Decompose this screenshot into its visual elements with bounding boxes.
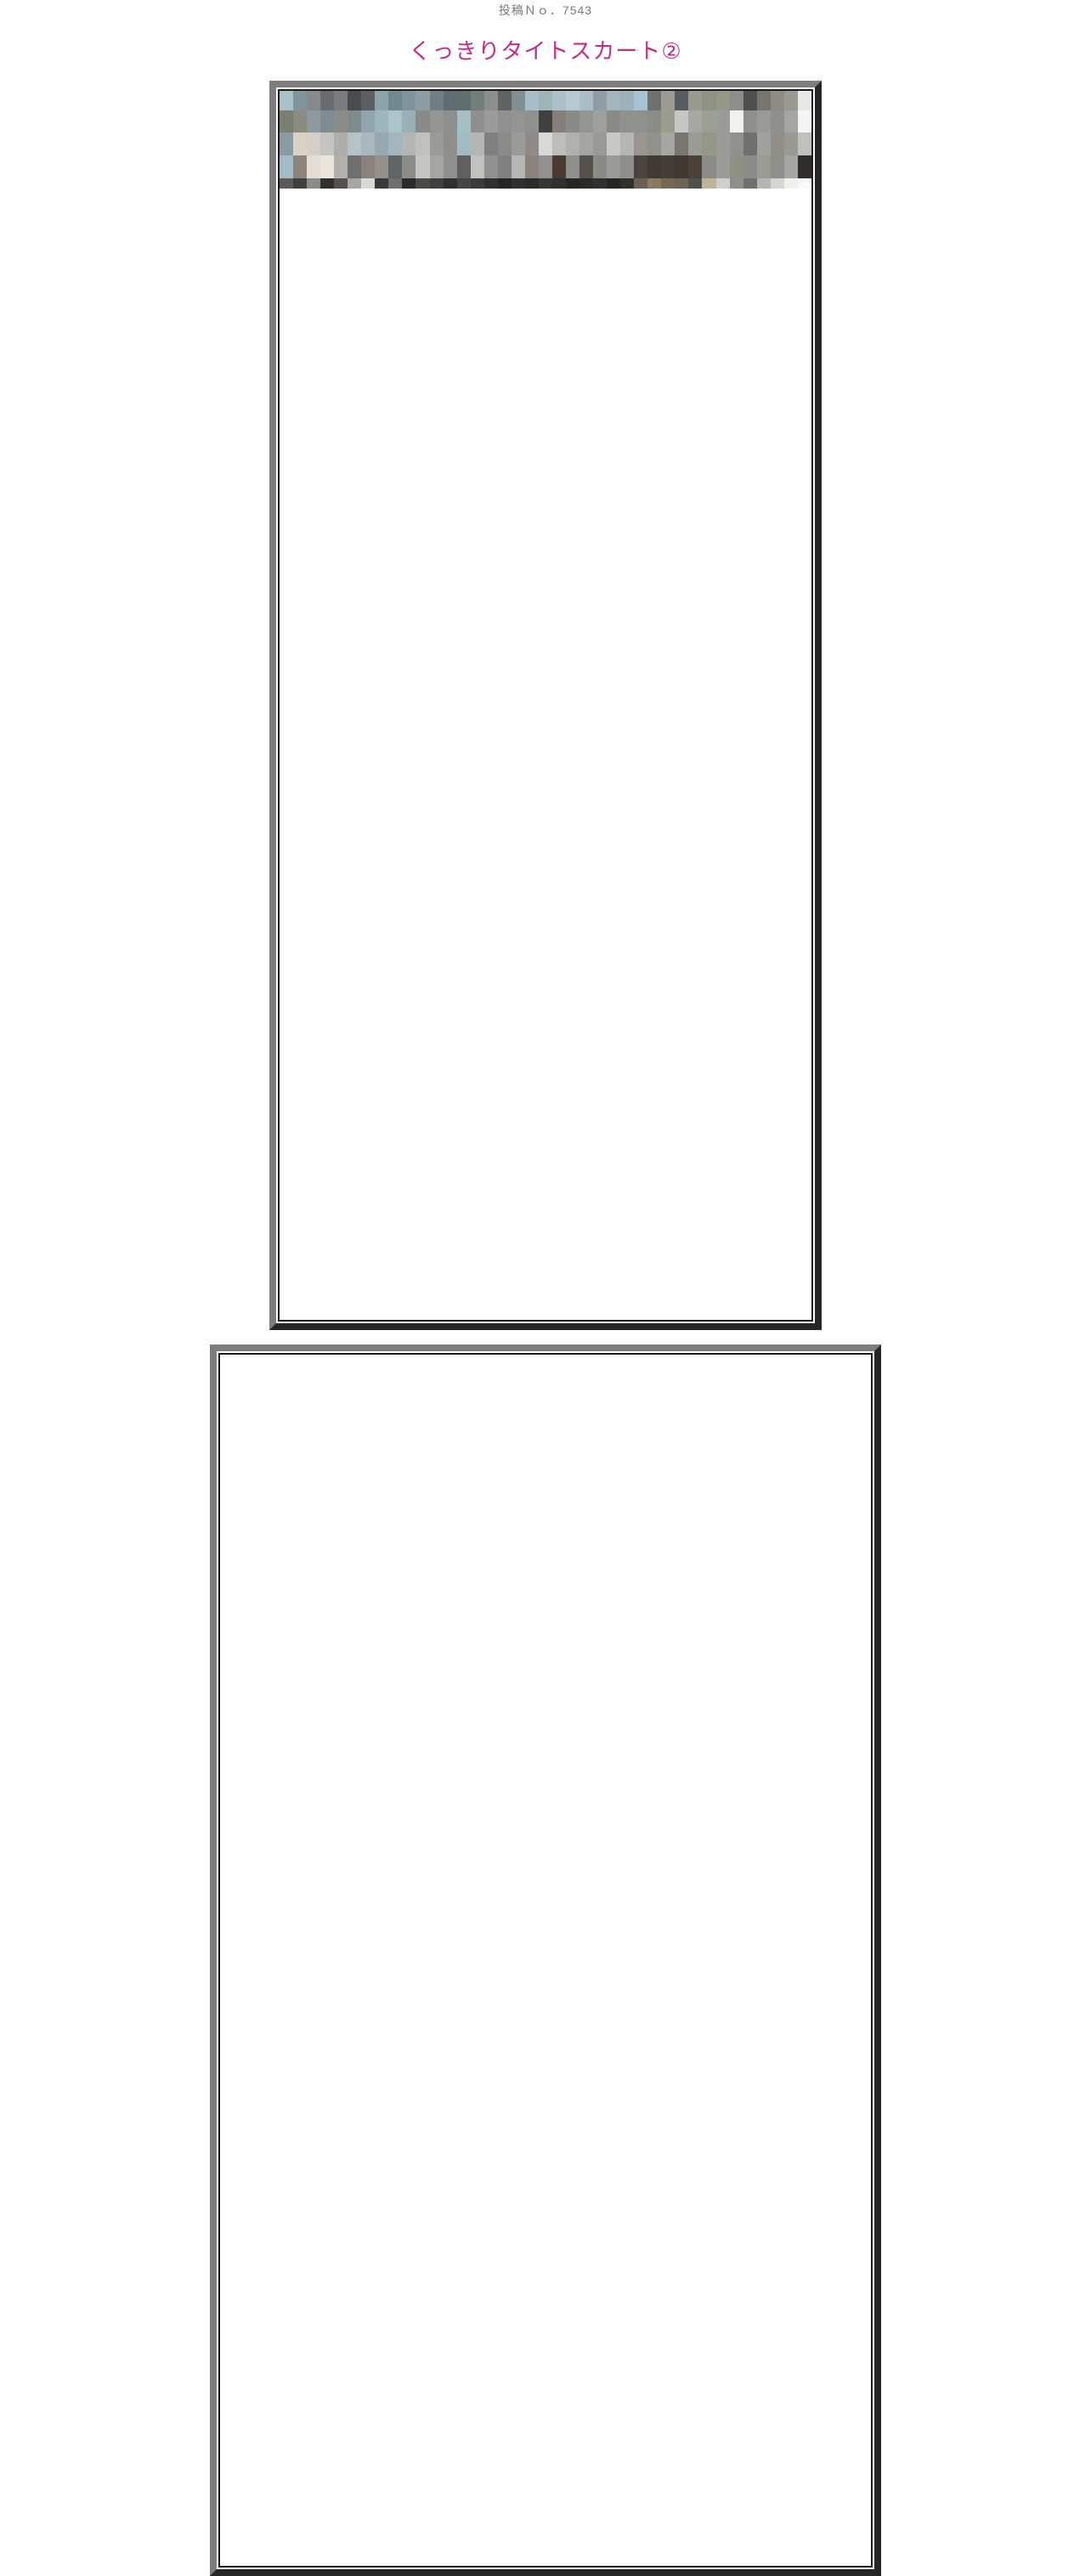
- mosaic-cell: [361, 178, 375, 189]
- mosaic-row: [280, 132, 811, 155]
- mosaic-cell: [552, 110, 566, 132]
- mosaic-cell: [348, 178, 361, 189]
- mosaic-cell: [402, 132, 415, 155]
- mosaic-cell: [539, 132, 552, 155]
- mosaic-cell: [798, 178, 811, 189]
- mosaic-cell: [593, 155, 607, 178]
- photo-frame-1[interactable]: [269, 81, 822, 1330]
- mosaic-cell: [688, 110, 702, 132]
- mosaic-cell: [334, 155, 348, 178]
- photo-frame-2-inner: [218, 1353, 873, 2568]
- mosaic-cell: [661, 91, 675, 110]
- mosaic-cell: [320, 178, 334, 189]
- mosaic-cell: [784, 110, 798, 132]
- mosaic-cell: [375, 132, 388, 155]
- mosaic-cell: [743, 110, 757, 132]
- mosaic-cell: [430, 132, 444, 155]
- mosaic-row: [280, 91, 811, 110]
- mosaic-cell: [743, 155, 757, 178]
- mosaic-cell: [593, 132, 607, 155]
- mosaic-cell: [430, 110, 444, 132]
- mosaic-cell: [388, 91, 402, 110]
- mosaic-cell: [334, 110, 348, 132]
- mosaic-cell: [771, 132, 784, 155]
- mosaic-cell: [388, 178, 402, 189]
- mosaic-cell: [539, 110, 552, 132]
- mosaic-cell: [402, 91, 415, 110]
- mosaic-cell: [348, 91, 361, 110]
- mosaic-cell: [620, 91, 634, 110]
- mosaic-cell: [593, 110, 607, 132]
- mosaic-cell: [566, 178, 579, 189]
- mosaic-cell: [539, 155, 552, 178]
- mosaic-cell: [444, 155, 457, 178]
- mosaic-cell: [607, 110, 620, 132]
- mosaic-cell: [375, 178, 388, 189]
- mosaic-cell: [402, 178, 415, 189]
- mosaic-cell: [702, 178, 715, 189]
- mosaic-cell: [661, 132, 675, 155]
- mosaic-cell: [293, 132, 307, 155]
- mosaic-cell: [415, 155, 429, 178]
- mosaic-cell: [498, 132, 512, 155]
- mosaic-cell: [320, 132, 334, 155]
- mosaic-cell: [757, 110, 771, 132]
- mosaic-cell: [457, 132, 471, 155]
- mosaic-cell: [471, 132, 484, 155]
- mosaic-cell: [498, 155, 512, 178]
- mosaic-cell: [430, 91, 444, 110]
- mosaic-row: [280, 110, 811, 132]
- mosaic-cell: [566, 110, 579, 132]
- mosaic-cell: [647, 155, 661, 178]
- mosaic-cell: [647, 178, 661, 189]
- mosaic-cell: [634, 91, 647, 110]
- mosaic-cell: [525, 110, 539, 132]
- mosaic-cell: [484, 178, 498, 189]
- mosaic-cell: [688, 132, 702, 155]
- mosaic-cell: [402, 155, 415, 178]
- mosaic-cell: [415, 91, 429, 110]
- mosaic-cell: [471, 110, 484, 132]
- mosaic-cell: [661, 178, 675, 189]
- mosaic-cell: [484, 155, 498, 178]
- mosaic-cell: [647, 132, 661, 155]
- mosaic-cell: [607, 178, 620, 189]
- mosaic-cell: [293, 155, 307, 178]
- mosaic-cell: [348, 110, 361, 132]
- photo-frame-1-inner: [278, 89, 813, 1322]
- mosaic-cell: [634, 155, 647, 178]
- mosaic-cell: [348, 155, 361, 178]
- mosaic-cell: [539, 91, 552, 110]
- mosaic-cell: [280, 155, 293, 178]
- mosaic-cell: [634, 110, 647, 132]
- mosaic-cell: [280, 178, 293, 189]
- mosaic-row: [280, 178, 811, 189]
- mosaic-cell: [525, 91, 539, 110]
- mosaic-cell: [771, 91, 784, 110]
- mosaic-cell: [320, 155, 334, 178]
- mosaic-cell: [539, 178, 552, 189]
- mosaic-cell: [730, 132, 743, 155]
- mosaic-cell: [675, 132, 688, 155]
- mosaic-cell: [566, 91, 579, 110]
- mosaic-cell: [334, 132, 348, 155]
- mosaic-cell: [675, 110, 688, 132]
- mosaic-cell: [702, 132, 715, 155]
- mosaic-cell: [607, 155, 620, 178]
- mosaic-cell: [498, 110, 512, 132]
- mosaic-cell: [375, 91, 388, 110]
- mosaic-cell: [484, 91, 498, 110]
- mosaic-cell: [675, 178, 688, 189]
- mosaic-cell: [771, 110, 784, 132]
- mosaic-cell: [784, 155, 798, 178]
- mosaic-cell: [579, 155, 593, 178]
- mosaic-cell: [444, 178, 457, 189]
- mosaic-cell: [757, 155, 771, 178]
- mosaic-cell: [593, 91, 607, 110]
- mosaic-cell: [552, 178, 566, 189]
- mosaic-cell: [484, 132, 498, 155]
- mosaic-cell: [471, 178, 484, 189]
- mosaic-cell: [512, 91, 525, 110]
- mosaic-cell: [675, 91, 688, 110]
- mosaic-cell: [457, 110, 471, 132]
- mosaic-cell: [512, 132, 525, 155]
- mosaic-cell: [444, 91, 457, 110]
- mosaic-cell: [716, 110, 730, 132]
- mosaic-cell: [320, 91, 334, 110]
- mosaic-cell: [293, 91, 307, 110]
- mosaic-cell: [430, 178, 444, 189]
- mosaic-cell: [525, 178, 539, 189]
- mosaic-cell: [334, 178, 348, 189]
- mosaic-cell: [730, 110, 743, 132]
- mosaic-cell: [498, 178, 512, 189]
- mosaic-cell: [647, 91, 661, 110]
- mosaic-cell: [402, 110, 415, 132]
- mosaic-cell: [280, 132, 293, 155]
- mosaic-cell: [280, 110, 293, 132]
- mosaic-cell: [688, 91, 702, 110]
- mosaic-cell: [771, 178, 784, 189]
- mosaic-cell: [702, 155, 715, 178]
- mosaic-cell: [647, 110, 661, 132]
- mosaic-cell: [444, 110, 457, 132]
- mosaic-cell: [716, 155, 730, 178]
- mosaic-cell: [757, 132, 771, 155]
- mosaic-cell: [552, 132, 566, 155]
- mosaic-cell: [307, 110, 320, 132]
- mosaic-cell: [307, 132, 320, 155]
- mosaic-cell: [484, 110, 498, 132]
- mosaic-cell: [730, 178, 743, 189]
- mosaic-cell: [457, 91, 471, 110]
- mosaic-cell: [579, 132, 593, 155]
- mosaic-cell: [743, 178, 757, 189]
- mosaic-cell: [512, 155, 525, 178]
- mosaic-cell: [498, 91, 512, 110]
- mosaic-cell: [361, 91, 375, 110]
- mosaic-cell: [798, 110, 811, 132]
- pixelated-photo[interactable]: [280, 91, 811, 189]
- mosaic-cell: [388, 155, 402, 178]
- mosaic-cell: [702, 110, 715, 132]
- mosaic-cell: [798, 91, 811, 110]
- mosaic-cell: [348, 132, 361, 155]
- mosaic-cell: [444, 132, 457, 155]
- mosaic-cell: [784, 178, 798, 189]
- mosaic-cell: [525, 132, 539, 155]
- mosaic-cell: [716, 91, 730, 110]
- mosaic-cell: [798, 132, 811, 155]
- mosaic-cell: [415, 132, 429, 155]
- mosaic-cell: [415, 110, 429, 132]
- mosaic-cell: [702, 91, 715, 110]
- mosaic-cell: [552, 91, 566, 110]
- mosaic-cell: [375, 110, 388, 132]
- mosaic-cell: [743, 91, 757, 110]
- mosaic-cell: [579, 178, 593, 189]
- mosaic-cell: [388, 110, 402, 132]
- mosaic-cell: [607, 132, 620, 155]
- mosaic-cell: [457, 155, 471, 178]
- mosaic-cell: [307, 178, 320, 189]
- page: 投稿Ｎｏ．7543 くっきりタイトスカート②: [0, 0, 1091, 2181]
- mosaic-cell: [361, 110, 375, 132]
- mosaic-cell: [566, 132, 579, 155]
- photo-frame-2[interactable]: [210, 1344, 881, 2576]
- mosaic-cell: [552, 155, 566, 178]
- mosaic-cell: [471, 155, 484, 178]
- mosaic-cell: [415, 178, 429, 189]
- mosaic-cell: [293, 178, 307, 189]
- mosaic-cell: [675, 155, 688, 178]
- mosaic-cell: [620, 155, 634, 178]
- mosaic-cell: [361, 155, 375, 178]
- mosaic-cell: [566, 155, 579, 178]
- mosaic-cell: [730, 91, 743, 110]
- mosaic-cell: [457, 178, 471, 189]
- mosaic-cell: [361, 132, 375, 155]
- mosaic-cell: [688, 155, 702, 178]
- mosaic-cell: [607, 91, 620, 110]
- mosaic-cell: [579, 91, 593, 110]
- post-number: 投稿Ｎｏ．7543: [0, 0, 1091, 18]
- mosaic-cell: [512, 178, 525, 189]
- mosaic-cell: [634, 178, 647, 189]
- mosaic-cell: [798, 155, 811, 178]
- mosaic-cell: [634, 132, 647, 155]
- mosaic-cell: [743, 132, 757, 155]
- mosaic-cell: [716, 178, 730, 189]
- mosaic-cell: [579, 110, 593, 132]
- mosaic-cell: [784, 91, 798, 110]
- mosaic-cell: [757, 178, 771, 189]
- mosaic-cell: [320, 110, 334, 132]
- mosaic-cell: [771, 155, 784, 178]
- mosaic-cell: [661, 155, 675, 178]
- mosaic-cell: [620, 132, 634, 155]
- mosaic-cell: [307, 155, 320, 178]
- mosaic-cell: [293, 110, 307, 132]
- mosaic-cell: [661, 110, 675, 132]
- mosaic-cell: [525, 155, 539, 178]
- mosaic-cell: [620, 110, 634, 132]
- mosaic-cell: [307, 91, 320, 110]
- mosaic-cell: [430, 155, 444, 178]
- mosaic-cell: [784, 132, 798, 155]
- mosaic-cell: [688, 178, 702, 189]
- mosaic-cell: [593, 178, 607, 189]
- mosaic-cell: [730, 155, 743, 178]
- mosaic-cell: [471, 91, 484, 110]
- mosaic-cell: [375, 155, 388, 178]
- mosaic-cell: [334, 91, 348, 110]
- mosaic-row: [280, 155, 811, 178]
- post-title: くっきりタイトスカート②: [0, 38, 1091, 64]
- mosaic-cell: [757, 91, 771, 110]
- mosaic-cell: [716, 132, 730, 155]
- mosaic-cell: [512, 110, 525, 132]
- mosaic-cell: [280, 91, 293, 110]
- mosaic-cell: [620, 178, 634, 189]
- mosaic-cell: [388, 132, 402, 155]
